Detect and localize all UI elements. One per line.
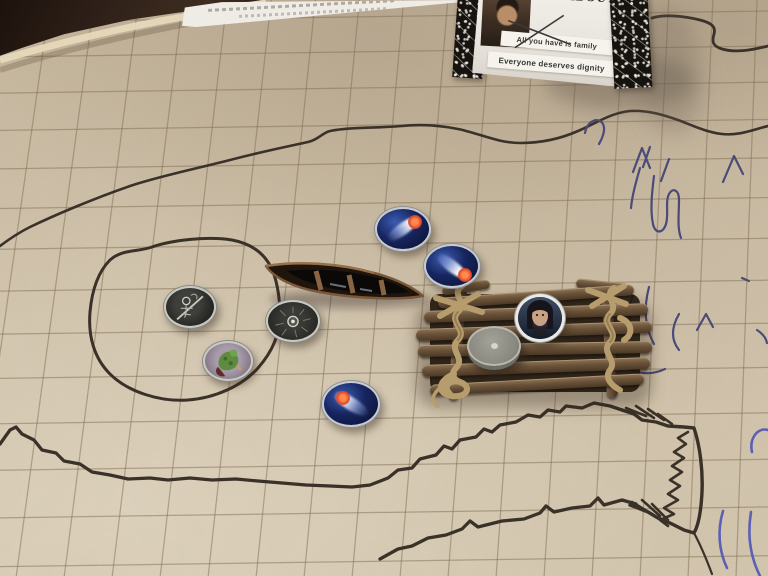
blank-gray-disc-token[interactable] <box>467 326 521 366</box>
green-creature-token[interactable] <box>203 341 253 381</box>
eye-creature-icon <box>268 302 318 341</box>
green-creature-icon <box>205 343 251 380</box>
comet-icon <box>426 246 478 286</box>
comet-fish-token-1[interactable] <box>375 207 431 251</box>
skeleton-figure-token[interactable] <box>164 286 216 328</box>
character-tent-card[interactable]: ROUSTABOUT All you have is family Everyo… <box>472 0 625 87</box>
cross-out-mark <box>472 0 625 87</box>
comet-icon <box>377 209 429 249</box>
skeleton-icon <box>166 288 214 327</box>
comet-fish-token-3[interactable] <box>322 381 380 427</box>
card-pattern-edge-right <box>610 0 653 89</box>
tabletop-battle-mat-scene: ROUSTABOUT All you have is family Everyo… <box>0 0 768 576</box>
comet-icon <box>324 383 378 425</box>
dark-eye-creature-token[interactable] <box>266 300 320 342</box>
bearded-man-portrait-token[interactable] <box>515 294 565 342</box>
bearded-man-portrait <box>518 297 562 339</box>
comet-fish-token-2[interactable] <box>424 244 480 288</box>
